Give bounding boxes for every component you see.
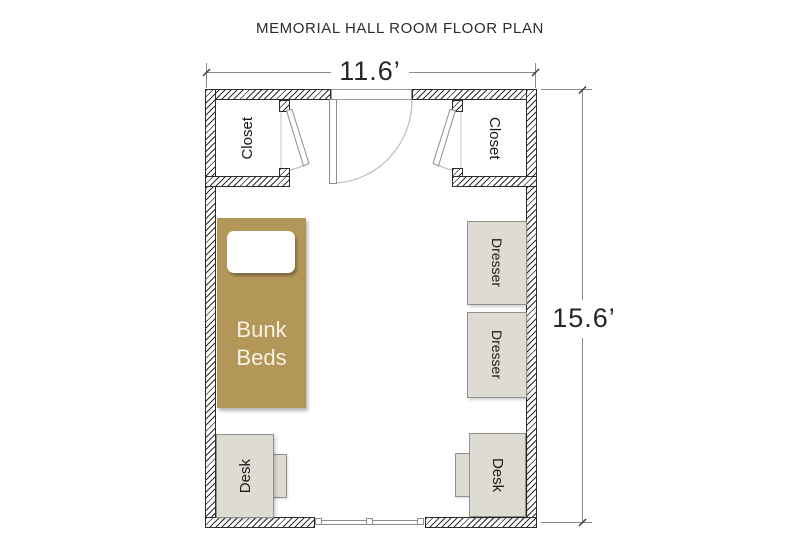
- wall-bottom-left: [205, 517, 315, 528]
- wall-top-right: [412, 89, 537, 100]
- closet-right-door-stub-top: [452, 100, 463, 112]
- window-mullion: [315, 518, 322, 525]
- desk-left-label: Desk: [237, 459, 254, 493]
- closet-door-left: [281, 110, 309, 171]
- closet-left-bottom-wall: [205, 176, 290, 187]
- desk-right-label: Desk: [489, 458, 506, 492]
- desk-left: Desk: [216, 434, 274, 518]
- window-mullion: [417, 518, 424, 525]
- closet-right-room: Closet: [463, 100, 526, 176]
- closet-right-label: Closet: [486, 117, 503, 160]
- width-dimension-label: 11.6’: [331, 55, 409, 87]
- dresser-bottom-label: Dresser: [489, 330, 505, 379]
- closet-left-label: Closet: [239, 117, 256, 160]
- closet-right-bottom-wall: [452, 176, 537, 187]
- bunk-beds: Bunk Beds: [217, 218, 306, 408]
- closet-right-door-stub-bottom: [452, 168, 463, 177]
- closet-door-right: [433, 110, 461, 171]
- dresser-top: Dresser: [467, 221, 527, 305]
- floor-plan-canvas: MEMORIAL HALL ROOM FLOOR PLAN 11.6’ 15.6…: [0, 0, 800, 550]
- desk-right: Desk: [469, 433, 526, 517]
- window: [315, 517, 425, 528]
- wall-left: [205, 89, 216, 528]
- wall-bottom-right: [425, 517, 537, 528]
- entry-door-opening: [331, 89, 412, 100]
- dresser-top-label: Dresser: [489, 238, 505, 287]
- wall-right: [526, 89, 537, 528]
- window-mullion: [366, 518, 373, 525]
- closet-left-door-stub-bottom: [279, 168, 290, 177]
- entry-door: [330, 100, 413, 184]
- bunk-bed-pillow: [227, 231, 295, 273]
- wall-top-left: [205, 89, 331, 100]
- closet-left-room: Closet: [216, 100, 279, 176]
- height-dimension-label: 15.6’: [548, 302, 620, 334]
- dresser-bottom: Dresser: [467, 312, 527, 398]
- plan-title: MEMORIAL HALL ROOM FLOOR PLAN: [0, 20, 800, 37]
- bunk-beds-label: Bunk Beds: [217, 316, 306, 372]
- closet-left-door-stub-top: [279, 100, 290, 112]
